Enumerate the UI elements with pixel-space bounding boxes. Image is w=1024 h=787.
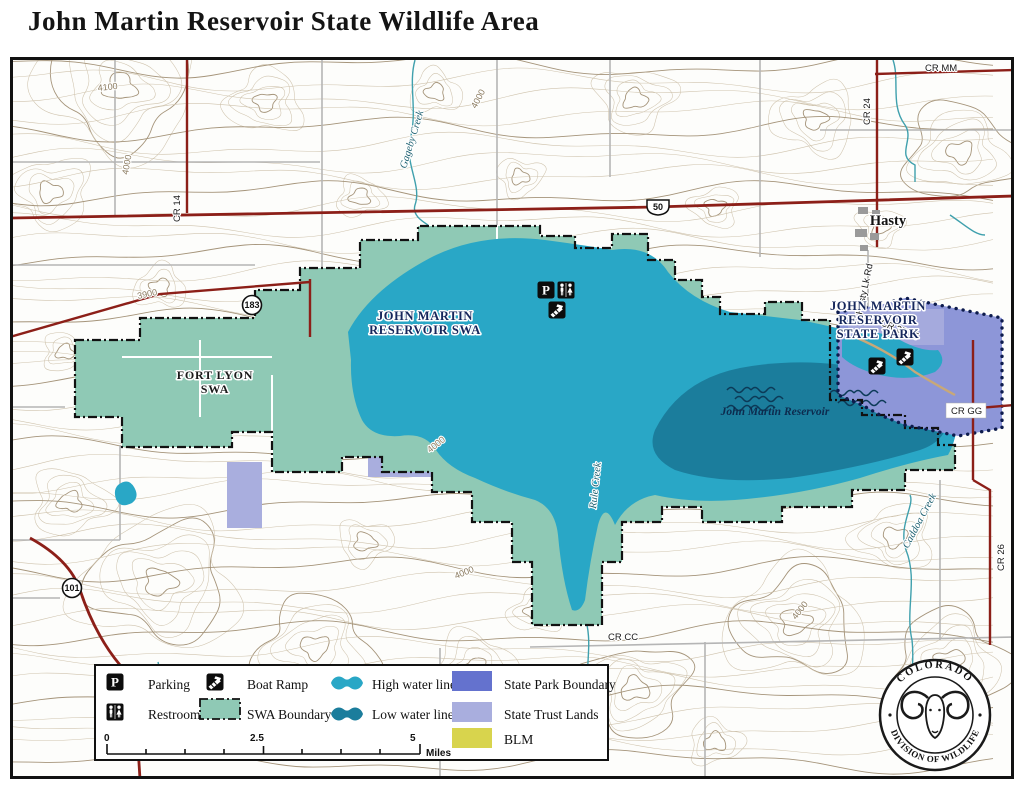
label-cr-cc: CR CC	[608, 632, 638, 643]
label-cr-24: CR 24	[862, 98, 873, 125]
svg-text:183: 183	[244, 300, 259, 310]
label-state-park-line2: RESERVOIR	[838, 313, 917, 327]
label-cr-mm: CR MM	[925, 63, 957, 74]
shield-us50: 50	[647, 200, 669, 215]
label-fort-lyon-line1: FORT LYON	[177, 368, 253, 382]
label-hasty: Hasty	[870, 213, 907, 229]
legend-state-park-label: State Park Boundary	[504, 677, 616, 692]
svg-text:Miles: Miles	[426, 748, 451, 759]
legend-swa-label: SWA Boundary	[247, 707, 332, 722]
legend-restroom-icon	[107, 704, 124, 721]
shield-sh101: 101	[63, 579, 82, 598]
svg-text:2.5: 2.5	[250, 733, 264, 744]
svg-text:0: 0	[104, 733, 110, 744]
label-fort-lyon-line2: SWA	[201, 382, 229, 396]
map: P	[10, 57, 1014, 779]
legend-parking-icon	[107, 674, 124, 691]
legend-restroom-label: Restroom	[148, 707, 201, 722]
legend-blm-swatch	[452, 728, 492, 748]
label-cr-gg: CR GG	[946, 403, 986, 418]
page-title: John Martin Reservoir State Wildlife Are…	[28, 6, 539, 37]
legend-trust-lands-label: State Trust Lands	[504, 707, 599, 722]
label-state-park-line3: STATE PARK	[837, 327, 920, 341]
svg-text:CR GG: CR GG	[951, 406, 982, 417]
svg-text:101: 101	[64, 583, 79, 593]
seal: COLORADO DIVISION OF WILDLIFE	[880, 660, 990, 770]
label-cr-26: CR 26	[996, 544, 1007, 571]
legend: Parking Restroom Boat Ramp SWA Boundary …	[95, 665, 616, 760]
svg-text:50: 50	[653, 202, 663, 212]
svg-text:5: 5	[410, 733, 416, 744]
legend-state-park-swatch	[452, 671, 492, 691]
legend-boat-ramp-icon	[207, 674, 224, 691]
legend-swa-swatch	[200, 699, 240, 719]
boat-ramp-icon	[549, 302, 566, 319]
boat-ramp-icon	[869, 358, 886, 375]
legend-boat-ramp-label: Boat Ramp	[247, 677, 308, 692]
parking-icon	[538, 282, 555, 299]
label-cr-14: CR 14	[172, 195, 183, 222]
legend-blm-label: BLM	[504, 732, 533, 747]
legend-low-water-label: Low water line	[372, 707, 454, 722]
legend-high-water-label: High water line	[372, 677, 456, 692]
shield-sh183: 183	[243, 296, 262, 315]
boat-ramp-icon	[897, 349, 914, 366]
label-elev-4100: 4100	[97, 81, 118, 93]
label-state-park-line1: JOHN MARTIN	[830, 299, 926, 313]
label-reservoir: John Martin Reservoir	[720, 406, 830, 418]
legend-parking-label: Parking	[148, 677, 190, 692]
legend-trust-lands-swatch	[452, 702, 492, 722]
map-svg: P	[10, 57, 1014, 779]
label-swa-line2: RESERVOIR SWA	[369, 323, 481, 337]
label-swa-line1: JOHN MARTIN	[377, 309, 473, 323]
restroom-icon	[558, 282, 575, 299]
